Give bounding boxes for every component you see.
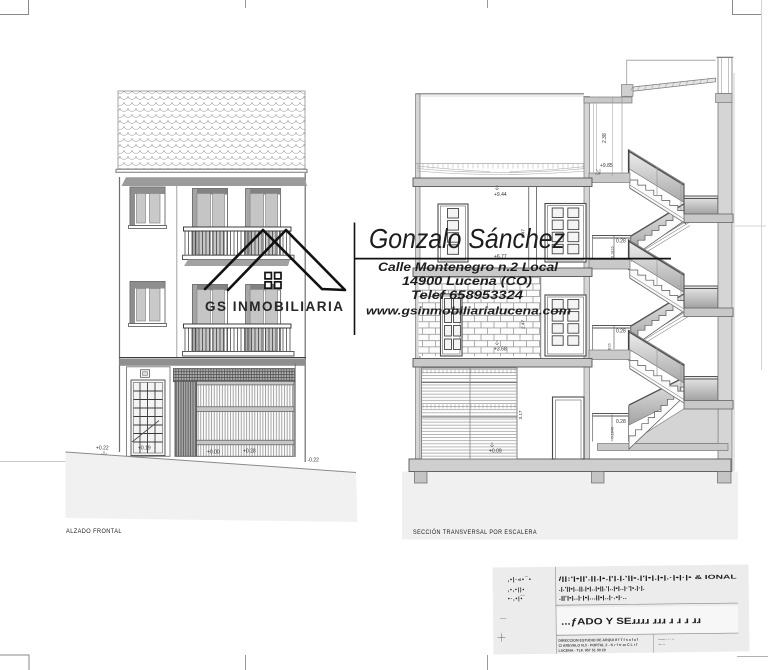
svg-text:0.28: 0.28: [616, 419, 626, 425]
svg-text:+0.09: +0.09: [489, 449, 502, 455]
svg-text:+9.44: +9.44: [494, 192, 507, 198]
svg-text:3.17: 3.17: [518, 410, 523, 419]
svg-text:+3.68: +3.68: [494, 347, 507, 353]
svg-text:+0.22: +0.22: [96, 446, 109, 452]
svg-text:0.1840: 0.1840: [611, 427, 615, 439]
svg-text:2.47: 2.47: [521, 320, 526, 329]
svg-text:+0.00: +0.00: [207, 450, 220, 456]
svg-text:-0.22: -0.22: [308, 458, 320, 464]
svg-text:0.28: 0.28: [616, 239, 626, 245]
svg-text:Calle Montenegro n.2 Local: Calle Montenegro n.2 Local: [378, 262, 559, 274]
svg-text:,•,•||•: ,•,•||•: [508, 587, 525, 593]
svg-text:0.28: 0.28: [616, 329, 626, 335]
svg-text:•·,•|•: •·,•|•: [508, 596, 523, 602]
svg-text:ALZADO FRONTAL: ALZADO FRONTAL: [66, 528, 122, 535]
svg-text:LUCENA - TLF. 957 51 39 20: LUCENA - TLF. 957 51 39 20: [558, 648, 605, 653]
svg-text:...ƒADO Y SEɹɹɹɹ ɹɹɹ ɹ ɹ ɹ ɹɹ: ...ƒADO Y SEɹɹɹɹ ɹɹɹ ɹ ɹ ɹ ɹɹ: [561, 615, 701, 627]
svg-text:www.gsinmobiliarialucena.com: www.gsinmobiliarialucena.com: [366, 306, 571, 318]
svg-text:0.1816: 0.1816: [611, 246, 615, 258]
svg-text:Gonzalo Sánchez: Gonzalo Sánchez: [369, 223, 565, 254]
svg-text:GS INMOBILIARIA: GS INMOBILIARIA: [205, 299, 345, 314]
svg-text:2.38: 2.38: [602, 133, 608, 143]
svg-text:+0.28: +0.28: [243, 449, 256, 455]
svg-text:.||'|•|..|·|•|...||•|..|·.•|·.: .||'|•|..|·|•|...||•|..|·.•|·..: [559, 595, 628, 602]
svg-text:— ··: — ··: [658, 642, 665, 646]
svg-text:—— ·· · ··: —— ·· · ··: [658, 637, 674, 641]
svg-text:.|.'||•|..||.|•|..|•||.'|..|•|: .|.'||•|..||.|•|..|•||.'|..|•|..|·'|•.|·…: [559, 586, 646, 593]
svg-text:14900 Lucena (CO): 14900 Lucena (CO): [402, 276, 532, 288]
svg-text:+9.85: +9.85: [600, 163, 613, 169]
svg-text:,•|·«•¯•: ,•|·«•¯•: [508, 576, 532, 583]
svg-text:Telef 658953324: Telef 658953324: [411, 290, 524, 302]
svg-text:SECCIÓN TRANSVERSAL POR ESCALE: SECCIÓN TRANSVERSAL POR ESCALERA: [413, 527, 537, 536]
svg-text:+0.19: +0.19: [138, 446, 151, 452]
